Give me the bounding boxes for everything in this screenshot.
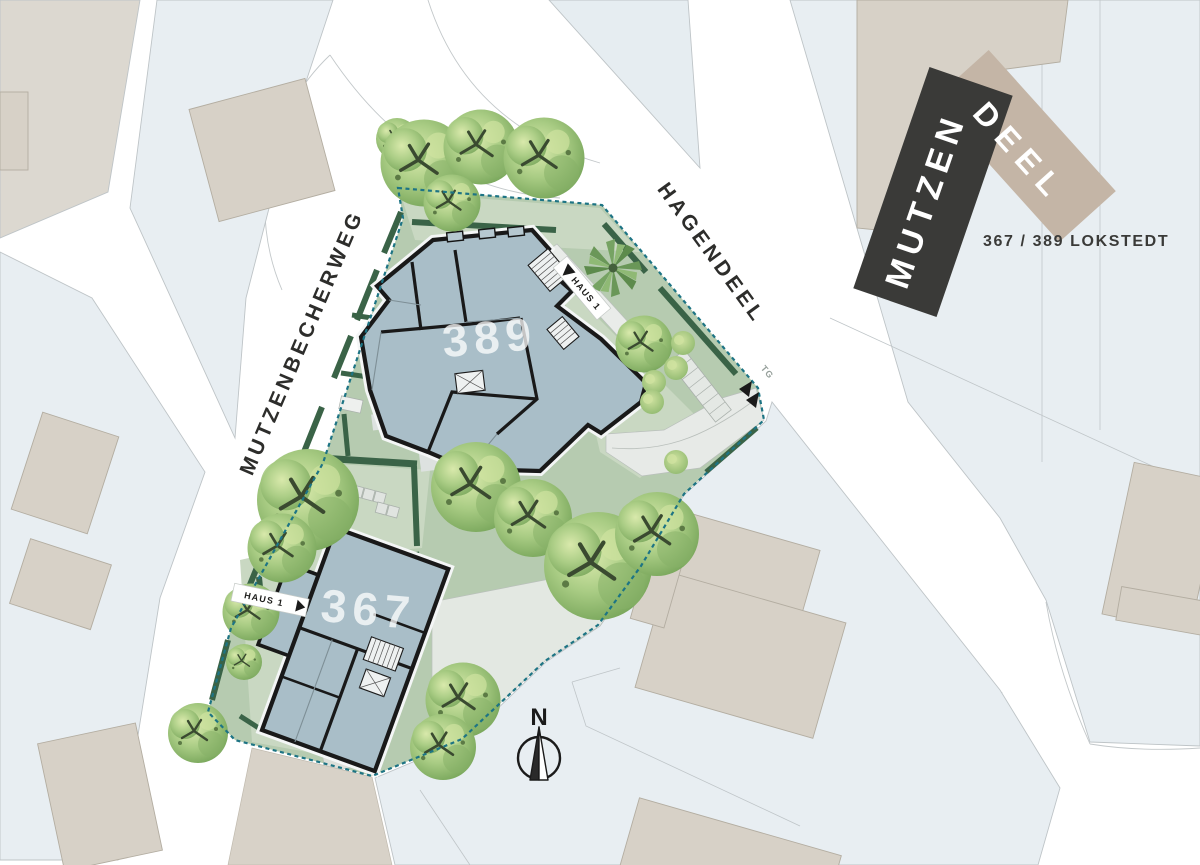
logo-caption: 367 / 389 LOKSTEDT (983, 233, 1169, 250)
bush (664, 356, 688, 380)
tree (248, 514, 317, 583)
tree (615, 492, 699, 576)
tree (168, 703, 228, 763)
tree (226, 644, 262, 680)
building-367-number: 367 (319, 579, 418, 639)
site-plan-page: 389 367 HAUS 1 HAUS 1 TG MUTZENBECHERWEG… (0, 0, 1200, 865)
tree (424, 175, 481, 232)
neighbor-building (0, 92, 28, 170)
bush (640, 390, 664, 414)
tree (616, 316, 673, 373)
bush (671, 331, 695, 355)
bush (664, 450, 688, 474)
building-389-number: 389 (440, 307, 539, 367)
tree (504, 118, 585, 199)
tree (410, 714, 476, 780)
site-plan-map: 389 367 HAUS 1 HAUS 1 TG MUTZENBECHERWEG… (0, 0, 1200, 865)
